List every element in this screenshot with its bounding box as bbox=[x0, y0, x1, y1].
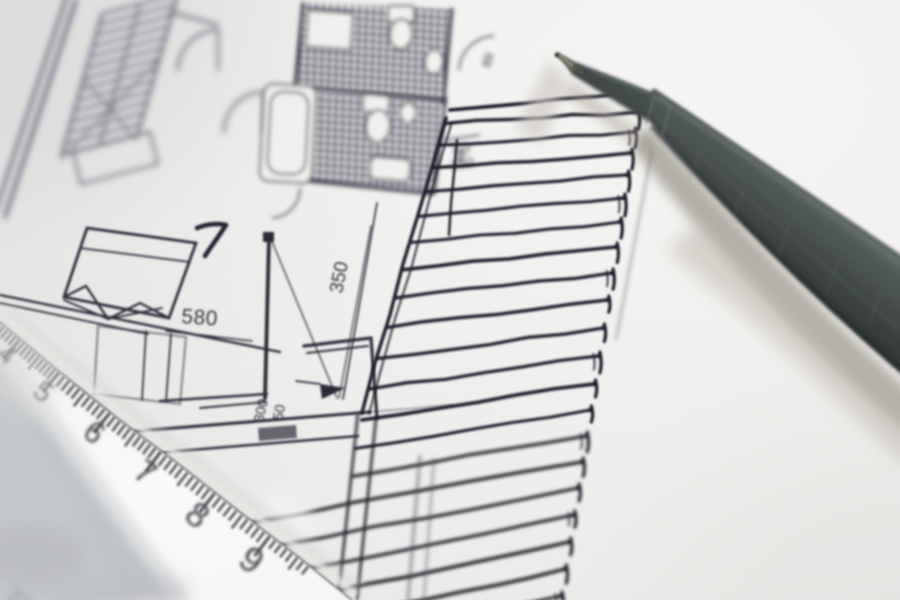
svg-text:580: 580 bbox=[181, 305, 219, 330]
